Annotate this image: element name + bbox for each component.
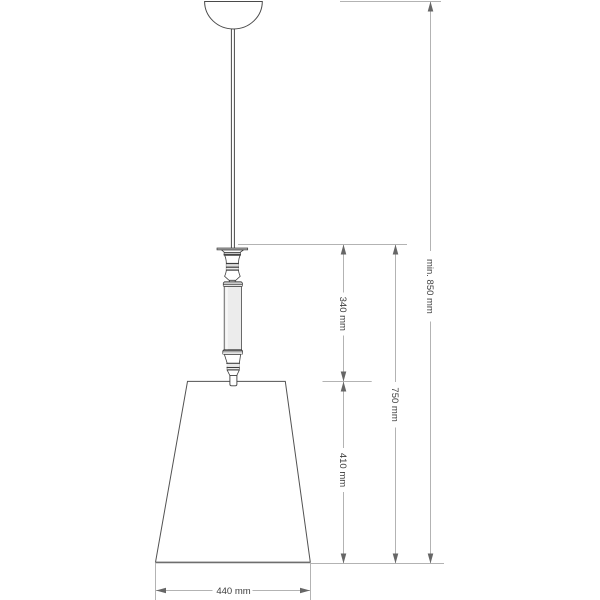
svg-text:340 mm: 340 mm <box>337 297 348 331</box>
svg-text:410 mm: 410 mm <box>337 453 348 487</box>
svg-text:750 mm: 750 mm <box>389 387 400 421</box>
svg-text:min. 850 mm: min. 850 mm <box>424 259 435 314</box>
svg-text:440 mm: 440 mm <box>216 586 250 597</box>
